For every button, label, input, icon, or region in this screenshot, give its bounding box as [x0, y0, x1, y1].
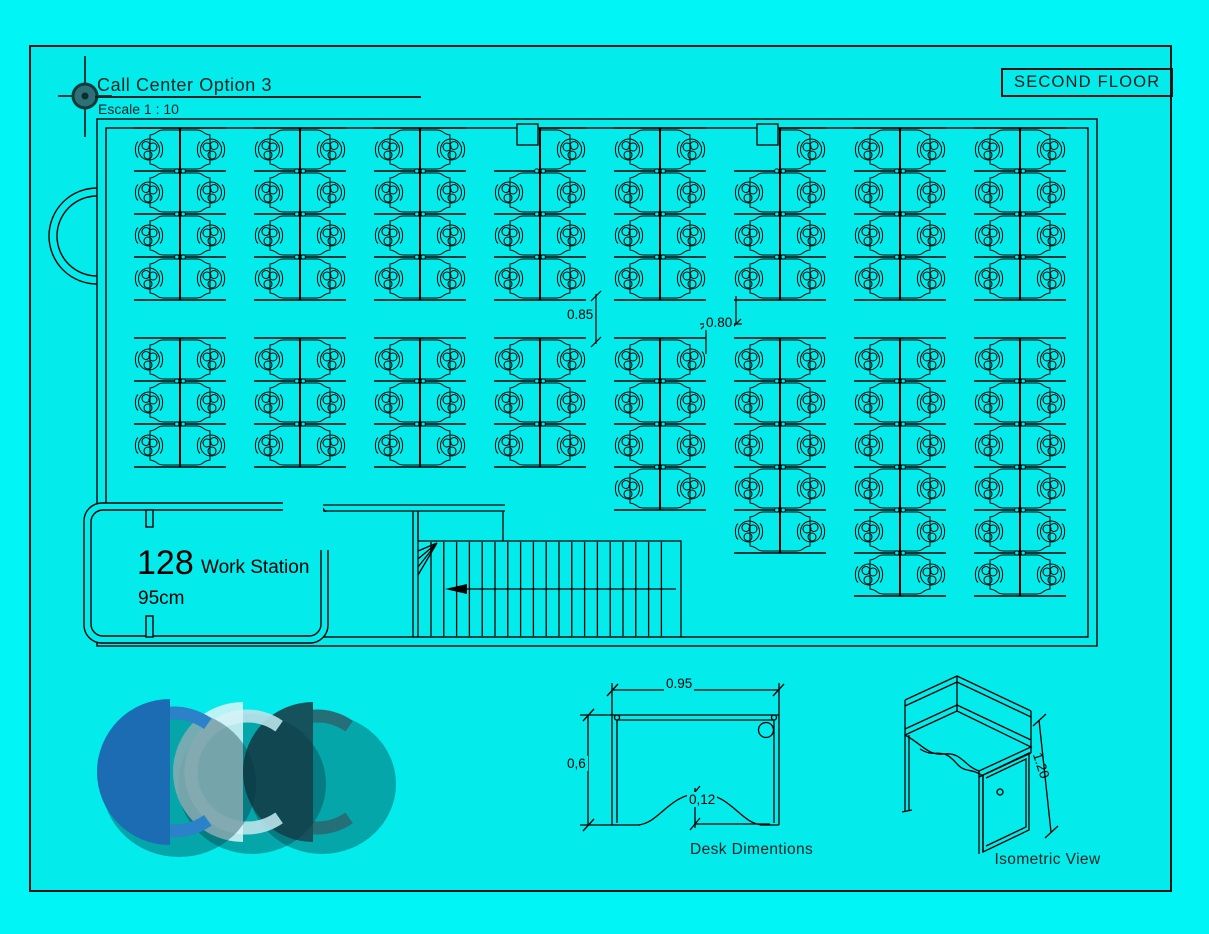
workstation-cluster	[254, 128, 346, 300]
workstation-cluster	[734, 338, 826, 553]
workstation-cluster	[974, 338, 1066, 596]
workstation-cluster	[614, 338, 706, 510]
aisle-horizontal-dimension: 0.80	[704, 315, 734, 330]
desk-cutout-dimension: 0,12	[687, 792, 717, 807]
isometric-caption: Isometric View	[960, 851, 1135, 869]
workstation-cluster	[494, 128, 586, 300]
desk-grommet-hole	[759, 723, 774, 738]
workstation-cluster	[374, 128, 466, 300]
workstation-cluster	[854, 338, 946, 596]
title-underline	[95, 96, 421, 98]
desk-width-label: 95cm	[138, 588, 184, 610]
wall-columns	[517, 124, 778, 145]
desk-depth-dimension: 0,6	[565, 756, 588, 771]
desk-dimensions-diagram	[580, 683, 784, 831]
cdc-logo	[97, 699, 396, 857]
workstation-cluster	[734, 128, 826, 300]
stairs	[323, 505, 681, 637]
desk-width-dimension: 0.95	[664, 676, 694, 691]
workstation-count-label: Work Station	[201, 557, 309, 579]
workstation-cluster	[374, 338, 466, 467]
workstation-cluster	[614, 128, 706, 300]
aisle-vertical-dimension: 0.85	[565, 307, 595, 322]
workstation-cluster	[494, 338, 586, 467]
workstation-cluster	[134, 338, 226, 467]
drawing-title: Call Center Option 3	[97, 75, 272, 96]
workstation-cluster	[854, 128, 946, 300]
floor-label: SECOND FLOOR	[1001, 68, 1173, 97]
workstation-count: 128	[137, 544, 194, 583]
workstation-cluster	[254, 338, 346, 467]
workstation-cluster	[134, 128, 226, 300]
floor-plan-canvas	[0, 0, 1209, 934]
desk-diagram-caption: Desk Dimentions	[690, 841, 813, 859]
drawing-scale: Escale 1 : 10	[98, 101, 179, 117]
workstation-cluster	[974, 128, 1066, 300]
